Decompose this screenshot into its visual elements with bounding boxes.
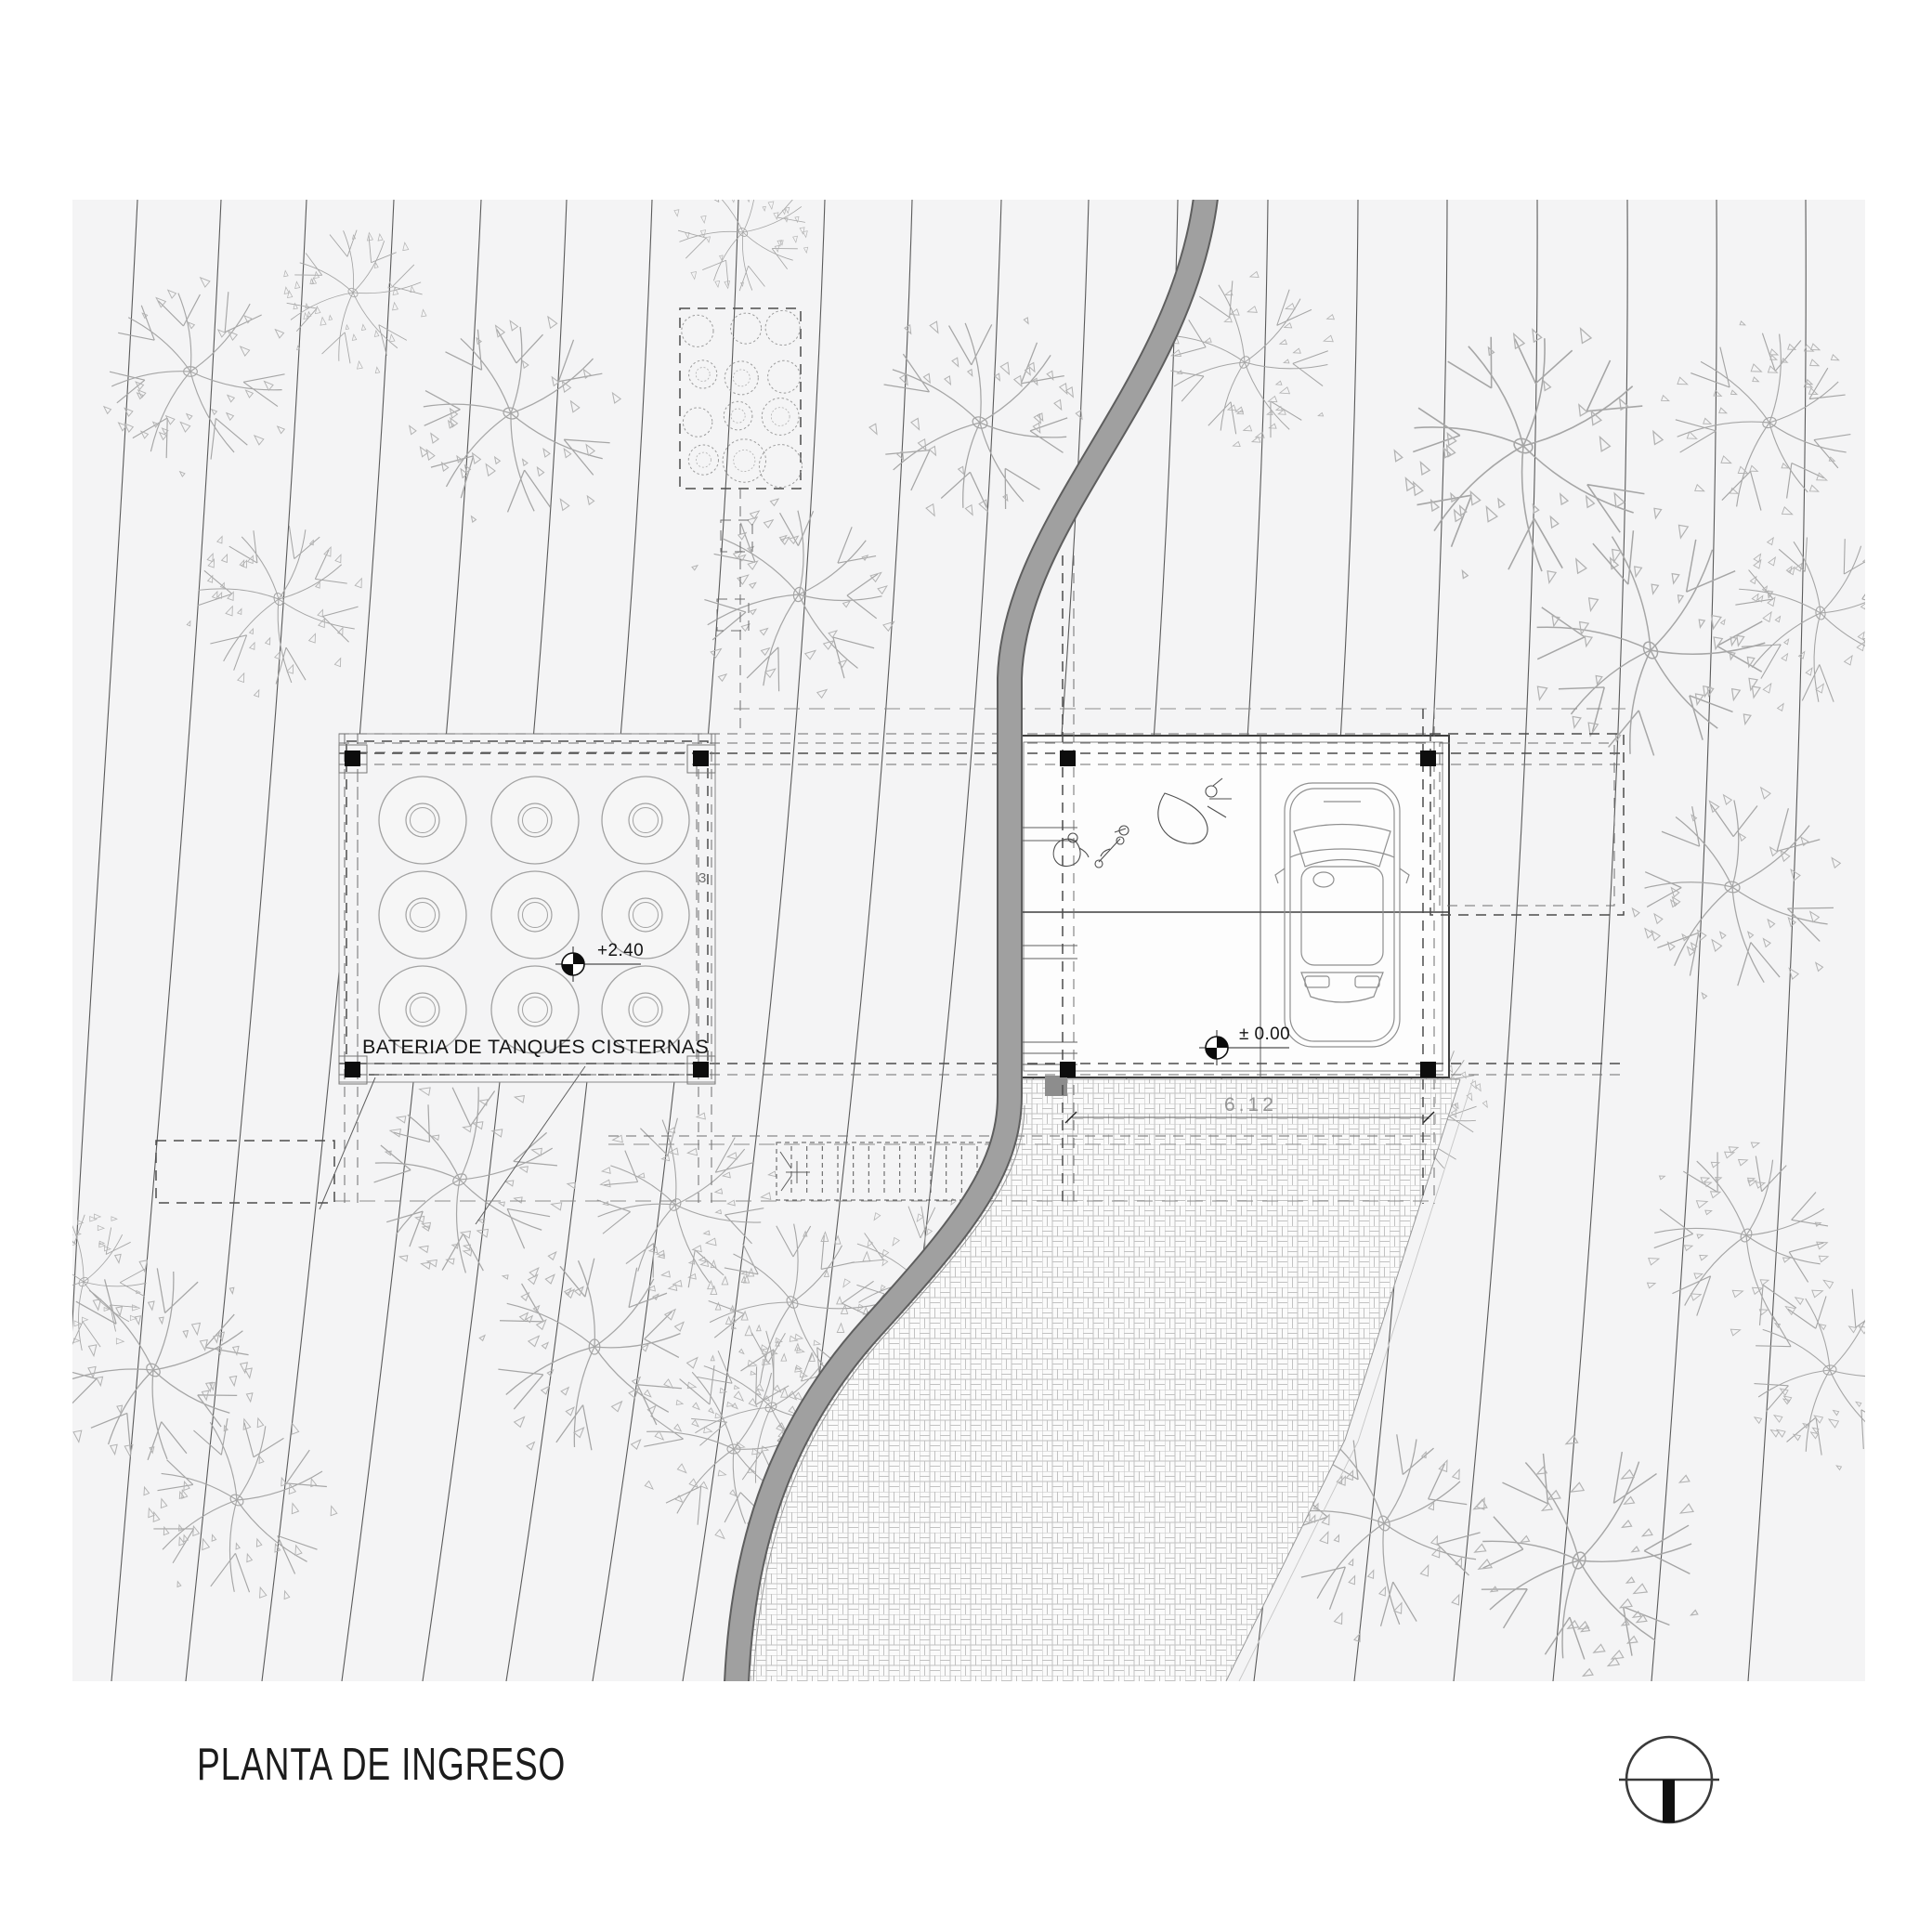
grid-axis-label: 3 xyxy=(698,870,706,886)
cistern-tank xyxy=(379,871,466,959)
drawing-title: PLANTA DE INGRESO xyxy=(197,1739,566,1791)
tank-battery-label: BATERIA DE TANQUES CISTERNAS xyxy=(362,1036,709,1058)
column xyxy=(345,1062,360,1077)
column xyxy=(1420,1062,1436,1077)
drawing-sheet: 6.12 xyxy=(0,0,1932,1932)
column xyxy=(1060,1062,1076,1077)
column xyxy=(693,1062,709,1077)
logo-mark xyxy=(1619,1737,1719,1822)
cistern-tank xyxy=(379,777,466,864)
level-text-entry: ± 0.00 xyxy=(1239,1025,1290,1044)
pavilion-slab xyxy=(1017,736,1449,1077)
dimension-text: 6.12 xyxy=(1224,1094,1277,1116)
cistern-tank xyxy=(491,777,579,864)
entry-pavilion xyxy=(1017,736,1449,1096)
cistern-tank xyxy=(602,777,689,864)
column xyxy=(345,751,360,766)
cistern-tanks xyxy=(379,777,689,1053)
column xyxy=(1060,751,1076,766)
column xyxy=(1420,751,1436,766)
site-plan-drawing: 6.12 xyxy=(0,0,1932,1932)
column xyxy=(693,751,709,766)
wall-stub xyxy=(1045,1076,1067,1096)
level-text-tanks: +2.40 xyxy=(597,941,644,960)
cistern-tank xyxy=(491,871,579,959)
